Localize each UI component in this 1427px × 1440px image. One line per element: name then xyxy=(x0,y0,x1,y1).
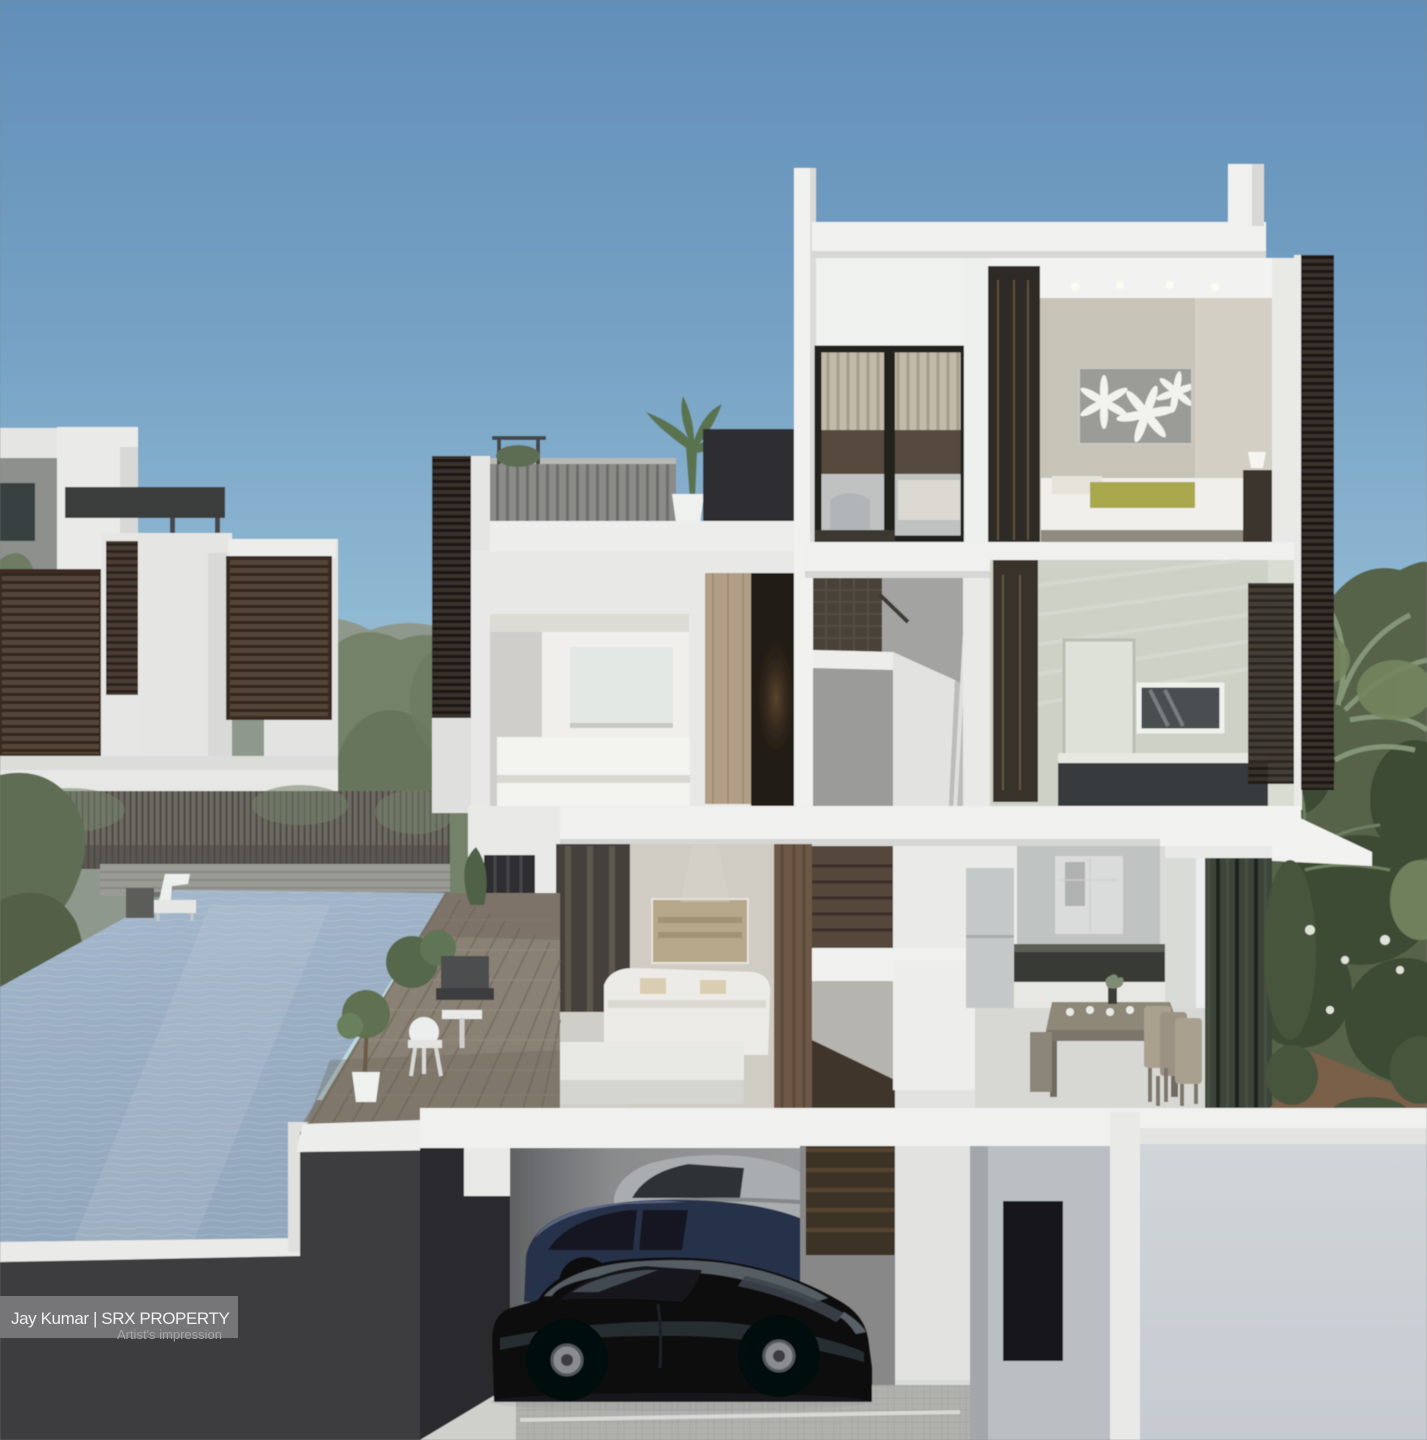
svg-text:Jay Kumar | SRX PROPERTY: Jay Kumar | SRX PROPERTY xyxy=(11,1309,229,1328)
svg-text:Artist's impression: Artist's impression xyxy=(117,1327,222,1342)
